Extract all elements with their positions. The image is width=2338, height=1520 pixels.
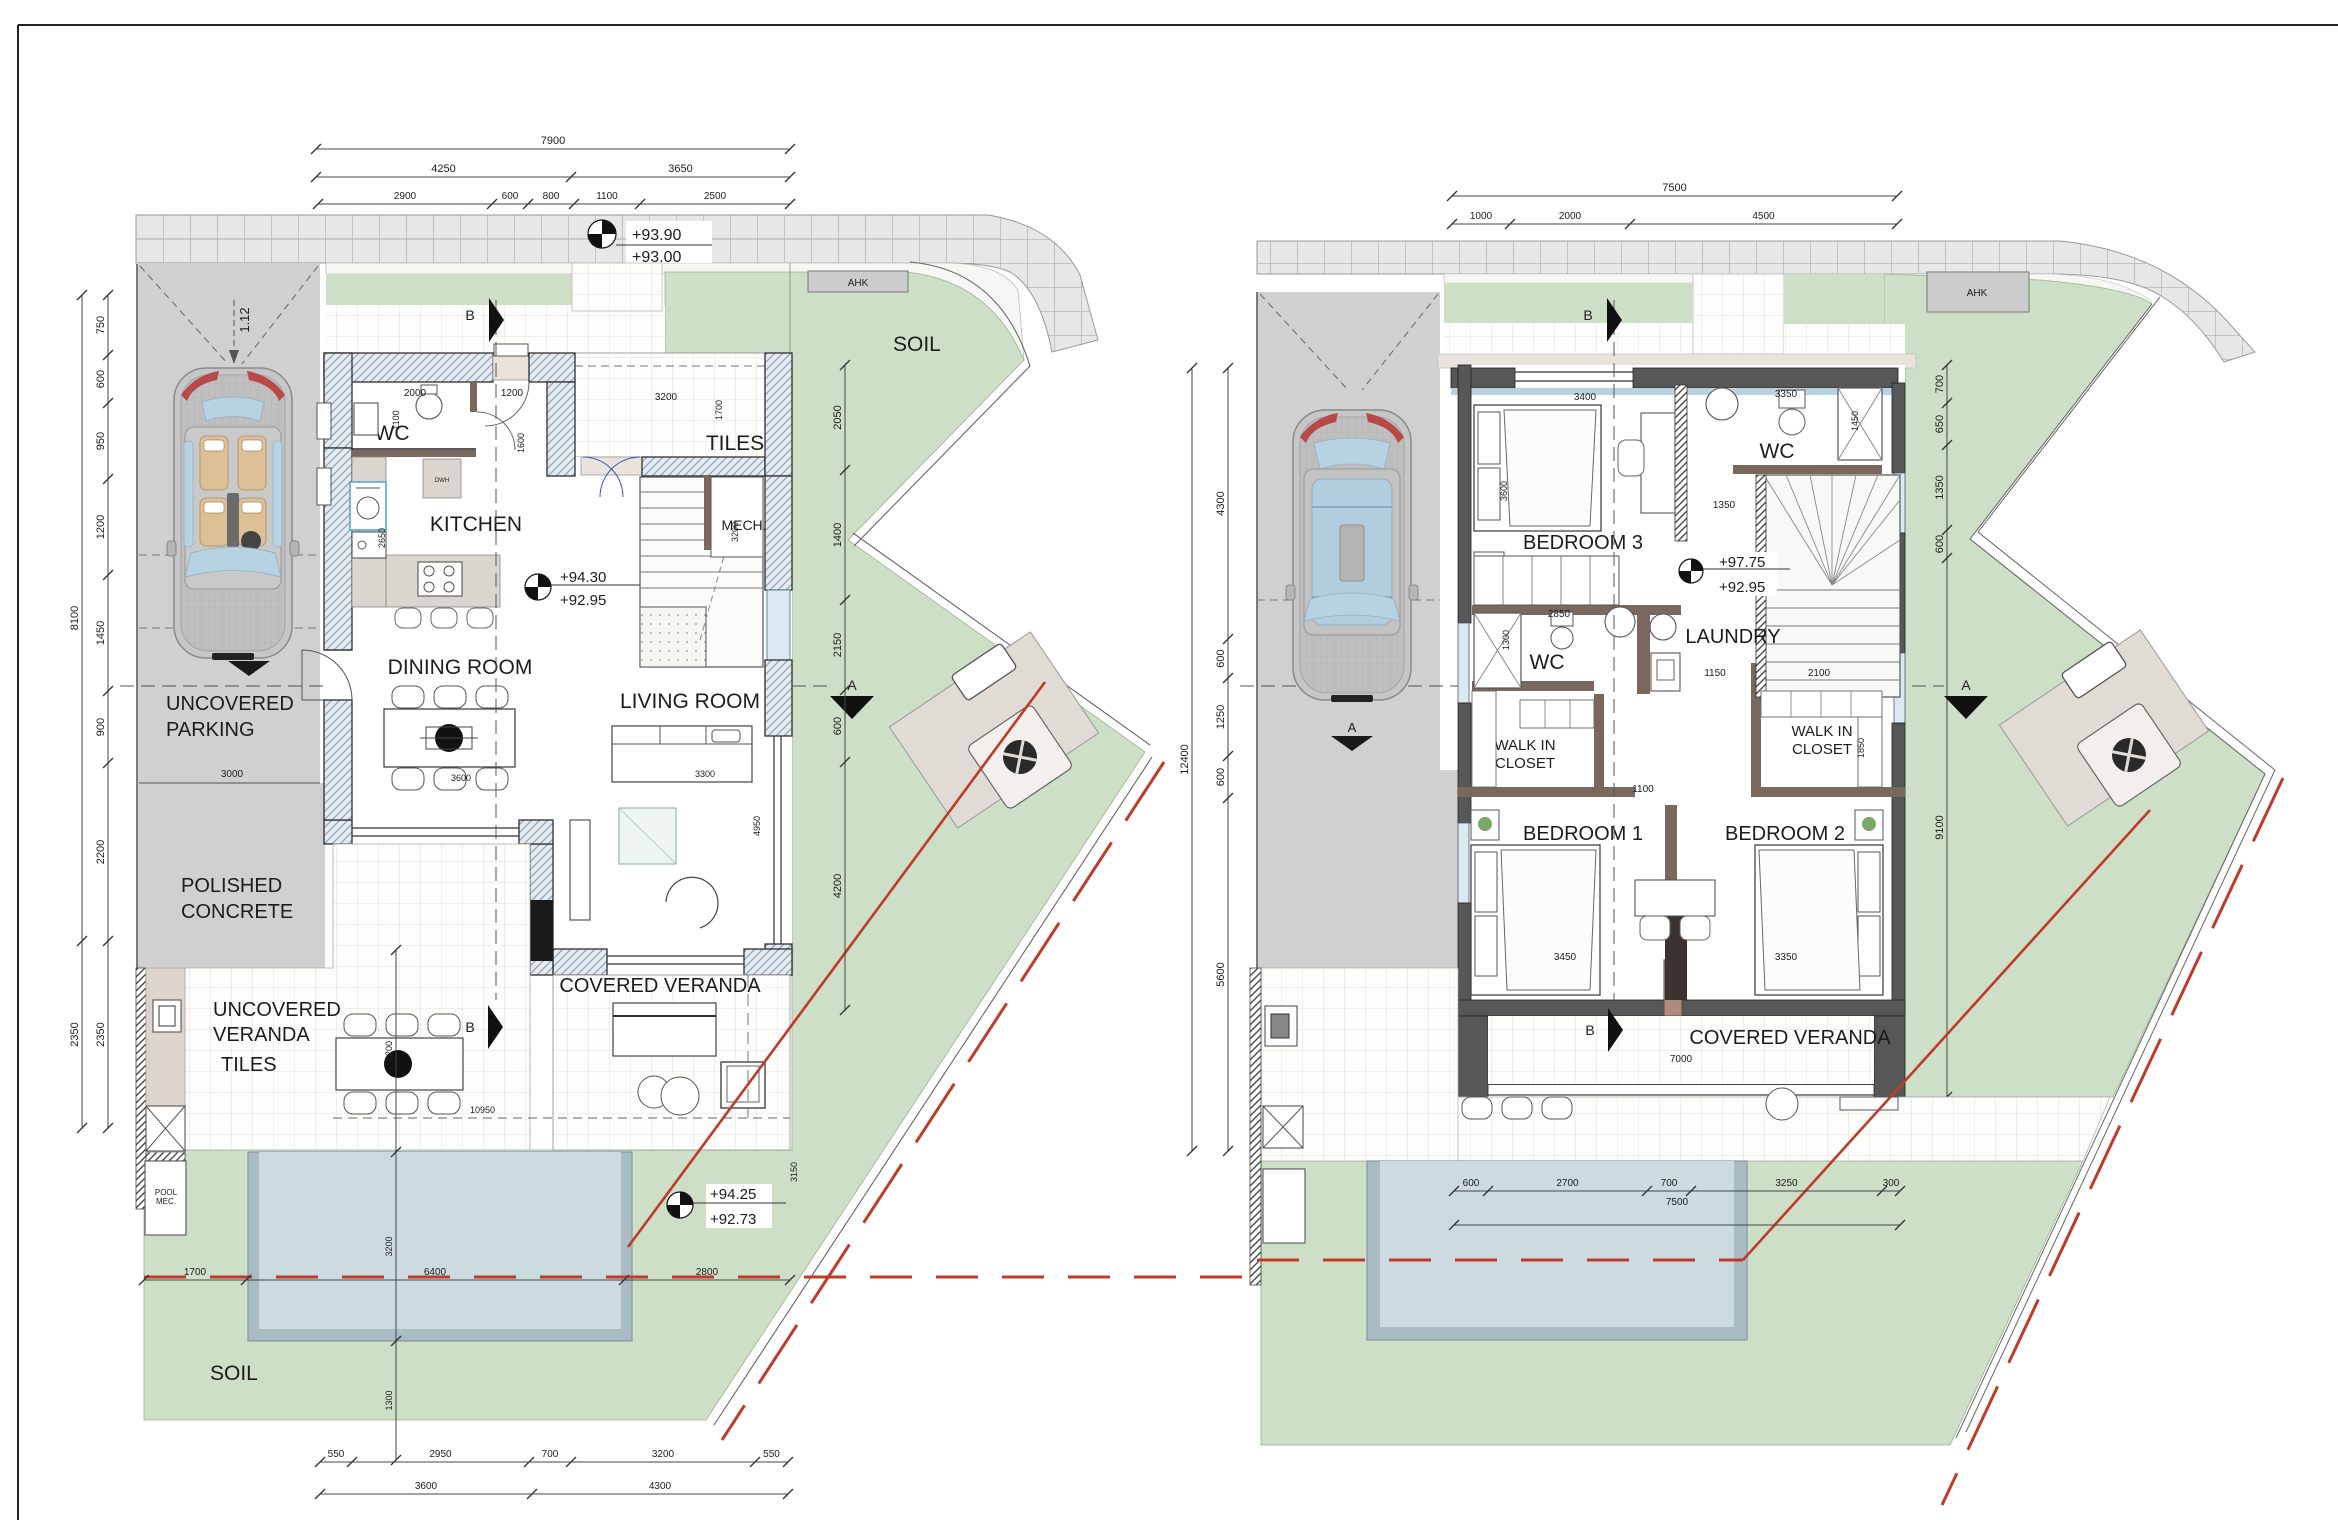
svg-text:WC: WC [1530,651,1565,674]
svg-text:1450: 1450 [95,621,107,645]
svg-text:700: 700 [1661,1178,1678,1189]
svg-text:6400: 6400 [424,1267,447,1278]
svg-text:POOL: POOL [155,1188,178,1197]
svg-text:AHK: AHK [1967,288,1988,299]
svg-text:2100: 2100 [1808,668,1831,679]
svg-text:4500: 4500 [1752,211,1775,222]
svg-text:+92.73: +92.73 [710,1211,756,1228]
svg-text:UNCOVERED: UNCOVERED [213,999,341,1021]
svg-text:1450: 1450 [1850,411,1860,431]
svg-text:7900: 7900 [541,135,565,147]
svg-text:+93.90: +93.90 [632,227,681,244]
svg-text:1400: 1400 [832,523,844,547]
svg-text:1600: 1600 [516,433,526,453]
svg-text:2500: 2500 [704,191,727,202]
svg-text:550: 550 [763,1449,780,1460]
svg-text:12400: 12400 [1179,744,1191,775]
svg-text:3000: 3000 [221,769,244,780]
svg-text:2000: 2000 [1559,211,1582,222]
svg-text:3150: 3150 [789,1162,799,1182]
svg-text:1200: 1200 [501,388,524,399]
svg-text:+94.30: +94.30 [560,569,606,586]
svg-text:DINING ROOM: DINING ROOM [388,656,533,679]
svg-text:5200: 5200 [384,1041,394,1061]
svg-text:2700: 2700 [1556,1178,1579,1189]
svg-text:WALK IN: WALK IN [1494,737,1555,754]
svg-text:750: 750 [95,316,107,334]
svg-text:LIVING ROOM: LIVING ROOM [620,690,760,713]
svg-text:A: A [847,677,857,693]
svg-text:7500: 7500 [1662,182,1686,194]
svg-text:550: 550 [328,1449,345,1460]
svg-text:2200: 2200 [95,840,107,864]
svg-text:POLISHED: POLISHED [181,875,282,897]
svg-text:2000: 2000 [404,388,427,399]
svg-text:B: B [1585,1022,1594,1038]
svg-text:CLOSET: CLOSET [1495,755,1555,772]
svg-text:300: 300 [1883,1178,1900,1189]
svg-text:1300: 1300 [1501,630,1511,650]
svg-text:BEDROOM 3: BEDROOM 3 [1523,532,1643,554]
svg-text:900: 900 [95,718,107,736]
svg-text:+97.75: +97.75 [1719,554,1765,571]
svg-text:BEDROOM 2: BEDROOM 2 [1725,823,1845,845]
svg-text:1100: 1100 [391,410,401,429]
svg-text:PARKING: PARKING [166,719,255,741]
svg-text:7000: 7000 [1670,1054,1693,1065]
svg-text:950: 950 [95,432,107,450]
svg-text:600: 600 [832,717,844,735]
svg-text:LAUNDRY: LAUNDRY [1685,626,1780,648]
svg-text:BEDROOM 1: BEDROOM 1 [1523,823,1643,845]
svg-text:MECH.: MECH. [721,517,766,533]
svg-text:MEC.: MEC. [156,1197,176,1206]
svg-text:10950: 10950 [470,1105,495,1115]
svg-text:3600: 3600 [451,773,471,783]
svg-text:3600: 3600 [415,1481,438,1492]
svg-text:3200: 3200 [652,1449,675,1460]
svg-text:2050: 2050 [832,405,844,429]
svg-text:+92.95: +92.95 [560,592,606,609]
svg-text:2350: 2350 [95,1022,107,1046]
svg-text:1.12: 1.12 [237,307,252,332]
svg-text:+94.25: +94.25 [710,1186,756,1203]
svg-text:1000: 1000 [1470,211,1493,222]
svg-text:3450: 3450 [1554,952,1577,963]
svg-text:700: 700 [542,1449,559,1460]
svg-text:4300: 4300 [649,1481,672,1492]
svg-text:WC: WC [1760,440,1795,463]
svg-text:TILES: TILES [706,432,764,455]
svg-text:1200: 1200 [95,515,107,539]
svg-text:650: 650 [1934,415,1946,433]
svg-text:2950: 2950 [429,1449,452,1460]
svg-text:+92.95: +92.95 [1719,579,1765,596]
svg-text:COVERED VERANDA: COVERED VERANDA [1689,1027,1891,1049]
svg-text:700: 700 [1934,375,1946,393]
svg-text:A: A [1348,720,1357,735]
svg-text:UNCOVERED: UNCOVERED [166,693,294,715]
svg-text:8100: 8100 [69,606,81,630]
svg-text:AHK: AHK [848,278,869,289]
svg-text:7500: 7500 [1666,1197,1689,1208]
svg-text:3350: 3350 [1775,952,1798,963]
svg-text:1150: 1150 [1704,668,1726,679]
svg-text:3400: 3400 [1574,392,1597,403]
svg-text:1700: 1700 [714,400,724,420]
svg-text:4300: 4300 [1215,491,1227,515]
svg-text:1850: 1850 [1856,738,1866,758]
svg-text:4950: 4950 [752,816,762,836]
svg-text:1100: 1100 [596,191,618,202]
svg-text:WALK IN: WALK IN [1791,723,1852,740]
svg-text:KITCHEN: KITCHEN [430,513,522,536]
svg-text:DWH: DWH [435,478,449,484]
svg-text:2900: 2900 [394,191,417,202]
svg-text:3600: 3600 [1499,481,1509,501]
svg-text:B: B [1583,307,1592,323]
svg-text:2650: 2650 [377,528,387,548]
svg-text:600: 600 [1463,1178,1480,1189]
svg-text:600: 600 [95,370,107,388]
svg-text:3200: 3200 [730,522,740,542]
svg-text:SOIL: SOIL [893,333,941,356]
svg-text:1300: 1300 [384,1390,394,1410]
svg-text:4200: 4200 [832,874,844,898]
svg-text:1700: 1700 [184,1267,207,1278]
svg-text:3300: 3300 [695,769,715,779]
svg-text:9100: 9100 [1934,815,1946,839]
svg-text:1100: 1100 [1632,784,1654,795]
svg-text:5600: 5600 [1215,962,1227,986]
svg-text:2150: 2150 [832,633,844,657]
svg-text:2350: 2350 [69,1022,81,1046]
svg-text:1250: 1250 [1215,705,1227,729]
svg-text:A: A [1961,677,1971,693]
svg-text:3250: 3250 [1775,1178,1798,1189]
svg-text:2850: 2850 [1548,609,1571,620]
svg-text:TILES: TILES [221,1054,277,1076]
svg-text:CONCRETE: CONCRETE [181,901,293,923]
svg-text:COVERED VERANDA: COVERED VERANDA [559,975,761,997]
svg-text:4250: 4250 [431,163,455,175]
svg-text:1350: 1350 [1713,500,1736,511]
svg-text:600: 600 [502,191,519,202]
svg-text:2800: 2800 [696,1267,719,1278]
svg-text:VERANDA: VERANDA [213,1024,310,1046]
svg-text:3650: 3650 [668,163,692,175]
svg-text:800: 800 [543,191,560,202]
svg-text:600: 600 [1934,535,1946,553]
svg-text:CLOSET: CLOSET [1792,741,1852,758]
svg-text:600: 600 [1215,768,1227,786]
svg-text:3200: 3200 [655,392,678,403]
svg-text:B: B [465,307,474,323]
svg-text:3350: 3350 [1775,389,1798,400]
svg-text:1350: 1350 [1934,475,1946,499]
svg-text:B: B [465,1019,474,1035]
svg-text:600: 600 [1215,649,1227,667]
svg-text:3200: 3200 [384,1236,394,1256]
svg-text:SOIL: SOIL [210,1362,258,1385]
